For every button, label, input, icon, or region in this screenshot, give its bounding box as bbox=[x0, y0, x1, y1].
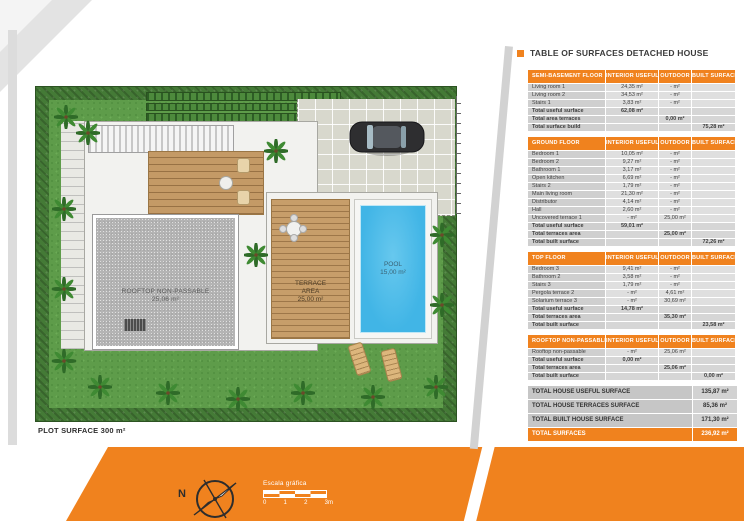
outdoor-cell bbox=[659, 373, 691, 380]
rooftop-vent bbox=[124, 319, 146, 331]
row-label: Total terraces area bbox=[528, 314, 605, 321]
built-surface-cell bbox=[692, 365, 735, 372]
section-name: GROUND FLOOR bbox=[528, 137, 605, 150]
patio-table-set bbox=[280, 215, 306, 241]
row-label: Distributor bbox=[528, 199, 605, 206]
terrace-area-value: 25,00 m² bbox=[295, 296, 326, 304]
compass-rose-icon bbox=[182, 474, 244, 524]
wood-deck bbox=[148, 151, 264, 215]
outdoor-cell: 25,00 m² bbox=[659, 231, 691, 238]
built-surface-cell bbox=[692, 84, 735, 91]
row-label: Total area terraces bbox=[528, 116, 605, 123]
interior-useful-cell: 0,00 m² bbox=[606, 357, 658, 364]
column-header: INTERIOR USEFUL bbox=[606, 252, 658, 265]
outdoor-cell: - m² bbox=[659, 151, 691, 158]
palm-tree-icon bbox=[52, 277, 76, 301]
outdoor-cell: 30,69 m² bbox=[659, 298, 691, 305]
table-section-header: ROOFTOP NON-PASSABLEINTERIOR USEFULOUTDO… bbox=[528, 335, 737, 348]
outdoor-cell: - m² bbox=[659, 84, 691, 91]
patio-chair bbox=[290, 214, 298, 222]
outdoor-cell: - m² bbox=[659, 175, 691, 182]
car-top-view bbox=[348, 117, 426, 159]
interior-useful-cell: 24,35 m² bbox=[606, 84, 658, 91]
dimension-ruler bbox=[456, 96, 463, 214]
table-total-row: Total terraces area25,00 m² bbox=[528, 231, 737, 238]
row-label: Living room 1 bbox=[528, 84, 605, 91]
interior-useful-cell: 1,79 m² bbox=[606, 183, 658, 190]
table-row: Rooftop non-passable- m²25,06 m² bbox=[528, 349, 737, 356]
scale-tick: 1 bbox=[284, 500, 287, 506]
outdoor-cell: 25,00 m² bbox=[659, 215, 691, 222]
table-row: Bathroom 23,58 m²- m² bbox=[528, 274, 737, 281]
table-total-row: Total useful surface62,08 m² bbox=[528, 108, 737, 115]
section-name: SEMI-BASEMENT FLOOR bbox=[528, 70, 605, 83]
column-header: OUTDOOR bbox=[659, 70, 691, 83]
table-section-header: GROUND FLOORINTERIOR USEFULOUTDOORBUILT … bbox=[528, 137, 737, 150]
built-surface-cell bbox=[692, 266, 735, 273]
row-label: Main living room bbox=[528, 191, 605, 198]
interior-useful-cell: 21,30 m² bbox=[606, 191, 658, 198]
row-label: Solarium terrace 3 bbox=[528, 298, 605, 305]
interior-useful-cell: 59,01 m² bbox=[606, 223, 658, 230]
interior-useful-cell: 3,83 m² bbox=[606, 100, 658, 107]
left-gray-strip bbox=[8, 30, 17, 445]
interior-useful-cell bbox=[606, 314, 658, 321]
column-header: INTERIOR USEFUL bbox=[606, 70, 658, 83]
built-surface-cell bbox=[692, 314, 735, 321]
built-surface-cell bbox=[692, 159, 735, 166]
table-row: Main living room21,30 m²- m² bbox=[528, 191, 737, 198]
interior-useful-cell bbox=[606, 231, 658, 238]
row-label: Uncovered terrace 1 bbox=[528, 215, 605, 222]
outdoor-cell: - m² bbox=[659, 207, 691, 214]
row-label: Total built surface bbox=[528, 322, 605, 329]
palm-tree-icon bbox=[156, 381, 180, 405]
side-walkway bbox=[61, 121, 85, 349]
table-row: Stairs 13,83 m²- m² bbox=[528, 100, 737, 107]
scale-ticks: 0 1 2 3m bbox=[263, 500, 333, 506]
row-label: Rooftop non-passable bbox=[528, 349, 605, 356]
row-label: Bedroom 1 bbox=[528, 151, 605, 158]
table-row: Bathroom 13,17 m²- m² bbox=[528, 167, 737, 174]
table-row: Open kitchen6,69 m²- m² bbox=[528, 175, 737, 182]
palm-tree-icon bbox=[430, 293, 454, 317]
column-header: OUTDOOR bbox=[659, 137, 691, 150]
table-row: Uncovered terrace 1- m²25,00 m² bbox=[528, 215, 737, 222]
interior-useful-cell: 3,58 m² bbox=[606, 274, 658, 281]
summary-label: TOTAL BUILT HOUSE SURFACE bbox=[528, 414, 692, 427]
site-plan: ROOFTOP NON-PASSABLE 25,06 m² TERRACE AR… bbox=[35, 86, 457, 422]
row-label: Open kitchen bbox=[528, 175, 605, 182]
table-row: Stairs 21,79 m²- m² bbox=[528, 183, 737, 190]
outdoor-cell: 25,06 m² bbox=[659, 365, 691, 372]
table-row: Bedroom 110,05 m²- m² bbox=[528, 151, 737, 158]
table-total-row: Total surface build75,28 m² bbox=[528, 124, 737, 131]
terrace-label-line1: TERRACE bbox=[295, 280, 326, 288]
interior-useful-cell: - m² bbox=[606, 349, 658, 356]
interior-useful-cell: - m² bbox=[606, 298, 658, 305]
diagonal-gray-strip bbox=[470, 46, 513, 449]
built-surface-cell bbox=[692, 108, 735, 115]
pool-label-text: POOL bbox=[380, 261, 406, 269]
pool-area-value: 15,00 m² bbox=[380, 269, 406, 277]
row-label: Total built surface bbox=[528, 239, 605, 246]
row-label: Total useful surface bbox=[528, 223, 605, 230]
table-section-header: SEMI-BASEMENT FLOORINTERIOR USEFULOUTDOO… bbox=[528, 70, 737, 83]
palm-tree-icon bbox=[264, 139, 288, 163]
summary-label: TOTAL HOUSE TERRACES SURFACE bbox=[528, 400, 692, 413]
table-row: Distributor4,14 m²- m² bbox=[528, 199, 737, 206]
palm-tree-icon bbox=[430, 223, 454, 247]
outdoor-cell bbox=[659, 108, 691, 115]
column-header: OUTDOOR bbox=[659, 335, 691, 348]
palm-tree-icon bbox=[244, 243, 268, 267]
interior-useful-cell bbox=[606, 373, 658, 380]
interior-useful-cell: 9,27 m² bbox=[606, 159, 658, 166]
outdoor-cell: 4,61 m² bbox=[659, 290, 691, 297]
outdoor-cell bbox=[659, 223, 691, 230]
built-surface-cell bbox=[692, 215, 735, 222]
row-label: Bathroom 2 bbox=[528, 274, 605, 281]
scale-bar-segment bbox=[264, 494, 326, 497]
table-section: SEMI-BASEMENT FLOORINTERIOR USEFULOUTDOO… bbox=[528, 70, 737, 131]
interior-useful-cell: 62,08 m² bbox=[606, 108, 658, 115]
surfaces-table: SEMI-BASEMENT FLOORINTERIOR USEFULOUTDOO… bbox=[528, 70, 737, 442]
built-surface-cell bbox=[692, 116, 735, 123]
interior-useful-cell: 2,60 m² bbox=[606, 207, 658, 214]
built-surface-cell bbox=[692, 199, 735, 206]
scale-bar bbox=[263, 490, 327, 498]
rooftop-area-value: 25,06 m² bbox=[122, 296, 210, 304]
row-label: Total terraces area bbox=[528, 365, 605, 372]
table-row: Solarium terrace 3- m²30,69 m² bbox=[528, 298, 737, 305]
table-section: GROUND FLOORINTERIOR USEFULOUTDOORBUILT … bbox=[528, 137, 737, 246]
built-surface-cell bbox=[692, 274, 735, 281]
summary-row: TOTAL BUILT HOUSE SURFACE171,30 m² bbox=[528, 414, 737, 427]
row-label: Hall bbox=[528, 207, 605, 214]
outdoor-cell: 25,06 m² bbox=[659, 349, 691, 356]
palm-tree-icon bbox=[424, 375, 448, 399]
outdoor-cell bbox=[659, 239, 691, 246]
built-surface-cell bbox=[692, 282, 735, 289]
table-section: TOP FLOORINTERIOR USEFULOUTDOORBUILT SUR… bbox=[528, 252, 737, 329]
table-row: Living room 124,35 m²- m² bbox=[528, 84, 737, 91]
interior-useful-cell bbox=[606, 322, 658, 329]
outdoor-cell: - m² bbox=[659, 282, 691, 289]
outdoor-cell: - m² bbox=[659, 159, 691, 166]
row-label: Total useful surface bbox=[528, 357, 605, 364]
built-surface-cell bbox=[692, 231, 735, 238]
row-label: Total surface build bbox=[528, 124, 605, 131]
built-surface-cell bbox=[692, 191, 735, 198]
table-total-row: Total area terraces0,00 m² bbox=[528, 116, 737, 123]
interior-useful-cell: 9,41 m² bbox=[606, 266, 658, 273]
row-label: Bedroom 2 bbox=[528, 159, 605, 166]
outdoor-cell bbox=[659, 357, 691, 364]
brochure-page: ROOFTOP NON-PASSABLE 25,06 m² TERRACE AR… bbox=[0, 0, 744, 526]
built-surface-cell bbox=[692, 100, 735, 107]
row-label: Pergola terrace 2 bbox=[528, 290, 605, 297]
built-surface-cell bbox=[692, 306, 735, 313]
interior-useful-cell: 1,79 m² bbox=[606, 282, 658, 289]
built-surface-cell bbox=[692, 349, 735, 356]
outdoor-cell: - m² bbox=[659, 100, 691, 107]
column-header: BUILT SURFACE bbox=[692, 70, 735, 83]
built-surface-cell bbox=[692, 207, 735, 214]
scale-bar-title: Escala gráfica bbox=[263, 480, 343, 487]
summary-value: 236,92 m² bbox=[693, 428, 737, 441]
palm-tree-icon bbox=[76, 121, 100, 145]
patio-chair bbox=[299, 225, 307, 233]
deck-table bbox=[219, 176, 233, 190]
interior-useful-cell: 34,53 m² bbox=[606, 92, 658, 99]
row-label: Total terraces area bbox=[528, 231, 605, 238]
summary-row: TOTAL HOUSE TERRACES SURFACE85,36 m² bbox=[528, 400, 737, 413]
table-section: ROOFTOP NON-PASSABLEINTERIOR USEFULOUTDO… bbox=[528, 335, 737, 380]
row-label: Stairs 2 bbox=[528, 183, 605, 190]
built-surface-cell bbox=[692, 151, 735, 158]
table-row: Bedroom 39,41 m²- m² bbox=[528, 266, 737, 273]
palm-tree-icon bbox=[226, 387, 250, 411]
table-row: Bedroom 29,27 m²- m² bbox=[528, 159, 737, 166]
interior-useful-cell: 10,05 m² bbox=[606, 151, 658, 158]
rooftop-label: ROOFTOP NON-PASSABLE 25,06 m² bbox=[122, 288, 210, 304]
interior-useful-cell: 6,69 m² bbox=[606, 175, 658, 182]
palm-tree-icon bbox=[291, 381, 315, 405]
built-surface-cell bbox=[692, 298, 735, 305]
table-row: Living room 234,53 m²- m² bbox=[528, 92, 737, 99]
patio-chair bbox=[279, 225, 287, 233]
built-surface-cell: 0,00 m² bbox=[692, 373, 735, 380]
rooftop-area: ROOFTOP NON-PASSABLE 25,06 m² bbox=[93, 215, 238, 349]
footer-orange-band bbox=[66, 447, 744, 521]
interior-useful-cell: 4,14 m² bbox=[606, 199, 658, 206]
column-header: BUILT SURFACE bbox=[692, 335, 735, 348]
summary-label: TOTAL SURFACES bbox=[528, 428, 692, 441]
table-title: TABLE OF SURFACES DETACHED HOUSE bbox=[530, 48, 740, 58]
pool: POOL 15,00 m² bbox=[354, 199, 432, 339]
table-total-row: Total useful surface59,01 m² bbox=[528, 223, 737, 230]
interior-useful-cell: - m² bbox=[606, 290, 658, 297]
table-total-row: Total terraces area35,30 m² bbox=[528, 314, 737, 321]
table-total-row: Total terraces area25,06 m² bbox=[528, 365, 737, 372]
table-row: Pergola terrace 2- m²4,61 m² bbox=[528, 290, 737, 297]
summary-value: 171,30 m² bbox=[693, 414, 737, 427]
palm-tree-icon bbox=[361, 385, 385, 409]
palm-tree-icon bbox=[54, 105, 78, 129]
summary-row: TOTAL HOUSE USEFUL SURFACE135,87 m² bbox=[528, 386, 737, 399]
pool-label: POOL 15,00 m² bbox=[380, 261, 406, 277]
table-section-header: TOP FLOORINTERIOR USEFULOUTDOORBUILT SUR… bbox=[528, 252, 737, 265]
built-surface-cell: 23,58 m² bbox=[692, 322, 735, 329]
row-label: Bathroom 1 bbox=[528, 167, 605, 174]
section-name: TOP FLOOR bbox=[528, 252, 605, 265]
summary-label: TOTAL HOUSE USEFUL SURFACE bbox=[528, 386, 692, 399]
title-bullet-icon bbox=[517, 50, 524, 57]
terrace-label-line2: AREA bbox=[295, 288, 326, 296]
scale-bar-group: Escala gráfica 0 1 2 3m bbox=[263, 480, 343, 506]
column-header: OUTDOOR bbox=[659, 252, 691, 265]
built-surface-cell: 75,28 m² bbox=[692, 124, 735, 131]
table-total-row: Total useful surface0,00 m² bbox=[528, 357, 737, 364]
interior-useful-cell bbox=[606, 116, 658, 123]
scale-tick: 0 bbox=[263, 500, 266, 506]
outdoor-cell: 0,00 m² bbox=[659, 116, 691, 123]
table-total-row: Total useful surface14,78 m² bbox=[528, 306, 737, 313]
column-header: BUILT SURFACE bbox=[692, 137, 735, 150]
built-surface-cell bbox=[692, 357, 735, 364]
column-header: BUILT SURFACE bbox=[692, 252, 735, 265]
summary-row: TOTAL SURFACES236,92 m² bbox=[528, 428, 737, 441]
terrace-label: TERRACE AREA 25,00 m² bbox=[295, 280, 326, 304]
row-label: Stairs 1 bbox=[528, 100, 605, 107]
stairs-strip bbox=[88, 125, 234, 153]
interior-useful-cell bbox=[606, 365, 658, 372]
outdoor-cell: - m² bbox=[659, 274, 691, 281]
summary-value: 85,36 m² bbox=[693, 400, 737, 413]
outdoor-cell bbox=[659, 322, 691, 329]
table-row: Hall2,60 m²- m² bbox=[528, 207, 737, 214]
interior-useful-cell bbox=[606, 239, 658, 246]
outdoor-cell bbox=[659, 124, 691, 131]
built-surface-cell: 72,26 m² bbox=[692, 239, 735, 246]
outdoor-cell: - m² bbox=[659, 183, 691, 190]
table-row: Stairs 31,79 m²- m² bbox=[528, 282, 737, 289]
palm-tree-icon bbox=[88, 375, 112, 399]
table-total-row: Total built surface0,00 m² bbox=[528, 373, 737, 380]
row-label: Bedroom 3 bbox=[528, 266, 605, 273]
outdoor-cell: - m² bbox=[659, 92, 691, 99]
scale-tick: 2 bbox=[304, 500, 307, 506]
built-surface-cell bbox=[692, 223, 735, 230]
outdoor-cell: 35,30 m² bbox=[659, 314, 691, 321]
column-header: INTERIOR USEFUL bbox=[606, 137, 658, 150]
row-label: Total useful surface bbox=[528, 306, 605, 313]
scale-tick: 3m bbox=[325, 500, 333, 506]
table-total-row: Total built surface23,58 m² bbox=[528, 322, 737, 329]
plot-surface-label: PLOT SURFACE 300 m² bbox=[38, 426, 126, 435]
built-surface-cell bbox=[692, 290, 735, 297]
outdoor-cell: - m² bbox=[659, 191, 691, 198]
table-total-row: Total built surface72,26 m² bbox=[528, 239, 737, 246]
outdoor-cell: - m² bbox=[659, 266, 691, 273]
built-surface-cell bbox=[692, 183, 735, 190]
row-label: Living room 2 bbox=[528, 92, 605, 99]
column-header: INTERIOR USEFUL bbox=[606, 335, 658, 348]
interior-useful-cell: 3,17 m² bbox=[606, 167, 658, 174]
patio-chair bbox=[290, 234, 298, 242]
built-surface-cell bbox=[692, 92, 735, 99]
row-label: Stairs 3 bbox=[528, 282, 605, 289]
outdoor-cell: - m² bbox=[659, 167, 691, 174]
palm-tree-icon bbox=[52, 197, 76, 221]
summary-value: 135,87 m² bbox=[693, 386, 737, 399]
built-surface-cell bbox=[692, 167, 735, 174]
row-label: Total useful surface bbox=[528, 108, 605, 115]
interior-useful-cell bbox=[606, 124, 658, 131]
deck-chair bbox=[237, 190, 250, 205]
deck-chair bbox=[237, 158, 250, 173]
rooftop-label-text: ROOFTOP NON-PASSABLE bbox=[122, 288, 210, 296]
built-surface-cell bbox=[692, 175, 735, 182]
outdoor-cell bbox=[659, 306, 691, 313]
row-label: Total built surface bbox=[528, 373, 605, 380]
interior-useful-cell: - m² bbox=[606, 215, 658, 222]
palm-tree-icon bbox=[52, 349, 76, 373]
outdoor-cell: - m² bbox=[659, 199, 691, 206]
interior-useful-cell: 14,78 m² bbox=[606, 306, 658, 313]
section-name: ROOFTOP NON-PASSABLE bbox=[528, 335, 605, 348]
